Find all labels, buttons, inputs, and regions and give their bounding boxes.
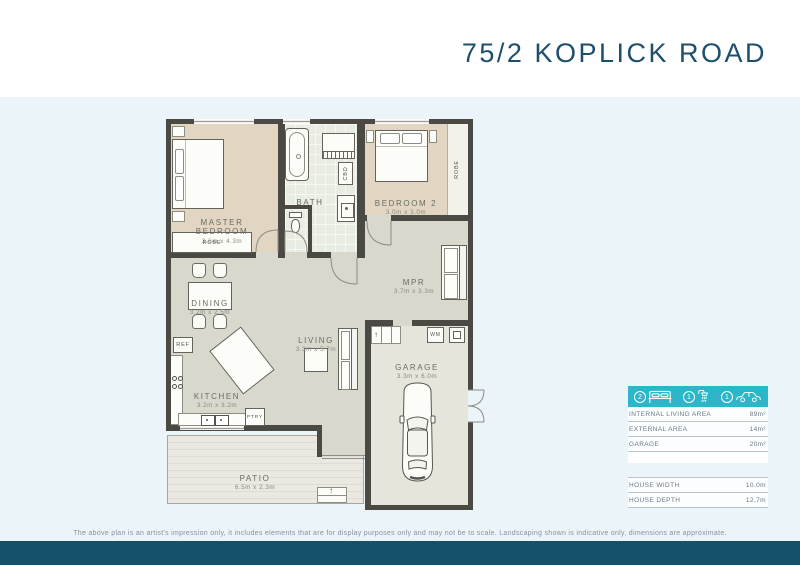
page-title: 75/2 KOPLICK ROAD — [462, 38, 767, 69]
bedroom-count-badge: 2 — [634, 391, 646, 403]
garage-feature: 1 — [721, 390, 762, 403]
table-row: EXTERNAL AREA 14m² — [628, 422, 768, 437]
row-value: 89m² — [750, 411, 766, 418]
floor-plan: ROBE CBD ROBE — [166, 119, 473, 510]
shower-icon — [697, 389, 710, 404]
row-value: 12.7m — [746, 497, 766, 504]
disclaimer-text: The above plan is an artist's impression… — [0, 530, 800, 537]
bed-icon — [648, 390, 672, 404]
table-row: HOUSE DEPTH 12.7m — [628, 493, 768, 508]
bedrooms-feature: 2 — [634, 390, 672, 404]
row-value: 10.0m — [746, 482, 766, 489]
summary-table: 2 1 — [628, 386, 768, 508]
row-label: INTERNAL LIVING AREA — [629, 411, 711, 418]
garage-label: GARAGE 3.3m x 6.0m — [377, 353, 457, 390]
page: 75/2 KOPLICK ROAD — [0, 0, 800, 565]
master-label: MASTER BEDROOM 3.6m x 4.3m — [182, 208, 262, 255]
row-value: 20m² — [750, 441, 766, 448]
blank-row — [628, 452, 768, 463]
bath-label: BATH — [270, 188, 350, 207]
patio-label: PATIO 6.5m x 2.3m — [215, 464, 295, 501]
row-label: HOUSE WIDTH — [629, 482, 680, 489]
footer-bar — [0, 541, 800, 565]
bedroom2-label: BEDROOM 2 3.0m x 3.0m — [366, 189, 446, 226]
car-count-badge: 1 — [721, 391, 733, 403]
table-row: INTERNAL LIVING AREA 89m² — [628, 407, 768, 422]
table-row: HOUSE WIDTH 10.0m — [628, 478, 768, 493]
row-label: GARAGE — [629, 441, 659, 448]
dimension-rows: HOUSE WIDTH 10.0m HOUSE DEPTH 12.7m — [628, 477, 768, 508]
bathrooms-feature: 1 — [683, 389, 710, 404]
car-icon — [735, 390, 762, 403]
row-value: 14m² — [750, 426, 766, 433]
dining-label: DINING 3.2m x 2.5m — [170, 289, 250, 326]
kitchen-label: KITCHEN 3.2m x 3.2m — [177, 382, 257, 419]
bath-count-badge: 1 — [683, 391, 695, 403]
mpr-label: MPR 3.7m x 3.3m — [374, 268, 454, 305]
row-label: HOUSE DEPTH — [629, 497, 680, 504]
features-bar: 2 1 — [628, 386, 768, 407]
row-label: EXTERNAL AREA — [629, 426, 687, 433]
living-label: LIVING 3.3m x 5.7m — [276, 326, 356, 363]
table-gap — [628, 463, 768, 477]
table-row: GARAGE 20m² — [628, 437, 768, 452]
